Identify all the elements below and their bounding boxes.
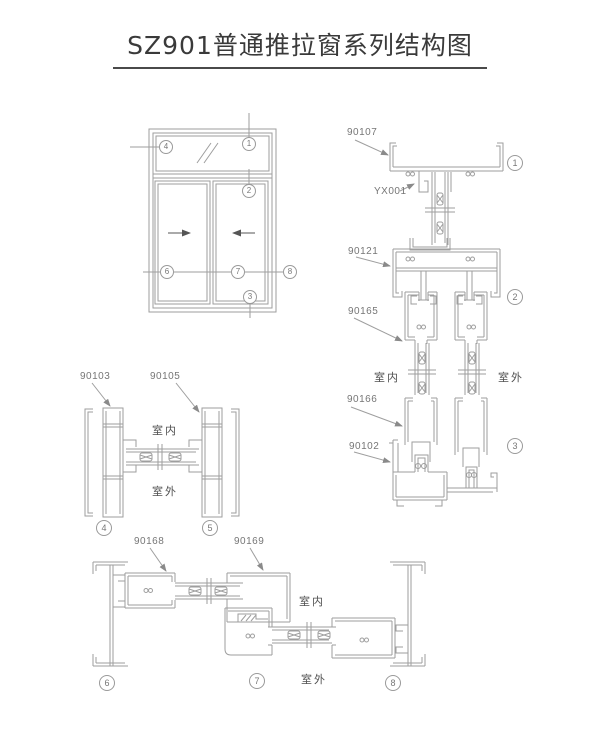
- section-marker-5: 5: [202, 520, 218, 536]
- callout-2-elevation: 2: [242, 184, 256, 198]
- section-marker-2: 2: [507, 289, 523, 305]
- part-label-90107: 90107: [347, 127, 377, 138]
- section-marker-8: 8: [385, 675, 401, 691]
- fixed-glass-unit: [410, 172, 455, 250]
- outdoor-label-jamb-section: 室外: [152, 483, 178, 499]
- glass-unit-left: [175, 578, 243, 604]
- page-title: SZ901普通推拉窗系列结构图: [113, 26, 487, 69]
- right-sash-stile-profile: [332, 618, 395, 658]
- callout-4-elevation: 4: [159, 140, 173, 154]
- part-label-90103: 90103: [80, 371, 110, 382]
- callout-3-elevation: 3: [243, 290, 257, 304]
- outdoor-label-section-v: 室外: [498, 369, 524, 385]
- indoor-label-jamb-section: 室内: [152, 422, 178, 438]
- part-leader-lines: [150, 548, 263, 571]
- part-label-90121: 90121: [348, 246, 378, 257]
- profile-90166-sash-bottoms: [405, 398, 487, 478]
- indoor-label-sash-section: 室内: [299, 593, 325, 609]
- sash-glass-units: [408, 343, 486, 395]
- section-marker-3: 3: [507, 438, 523, 454]
- window-elevation-drawing: [130, 105, 305, 330]
- part-label-90169: 90169: [234, 536, 264, 547]
- callout-1-elevation: 1: [242, 137, 256, 151]
- profile-90168-sash-stile: [125, 573, 175, 608]
- part-label-90166: 90166: [347, 394, 377, 405]
- glass-unit-horizontal: [126, 444, 199, 470]
- section-marker-6: 6: [99, 675, 115, 691]
- profile-90107-top-frame: [390, 143, 503, 176]
- part-label-90165: 90165: [348, 306, 378, 317]
- structure-diagram-page: SZ901普通推拉窗系列结构图: [0, 0, 600, 736]
- glass-hatch-icon: [197, 143, 218, 163]
- left-jamb-profile: [93, 562, 128, 666]
- part-label-yx001: YX001: [374, 186, 407, 197]
- part-label-90168: 90168: [134, 536, 164, 547]
- callout-7-elevation: 7: [231, 265, 245, 279]
- section-marker-4: 4: [96, 520, 112, 536]
- profile-90102-sill-track: [389, 440, 497, 506]
- glass-unit-right: [272, 622, 332, 648]
- callout-6-elevation: 6: [160, 265, 174, 279]
- profile-90105-jamb: [189, 408, 239, 517]
- part-label-90105: 90105: [150, 371, 180, 382]
- sliding-sashes: [155, 181, 268, 304]
- callout-8-elevation: 8: [283, 265, 297, 279]
- section-marker-1: 1: [507, 155, 523, 171]
- sash-section-drawing: [88, 545, 433, 680]
- part-label-90102: 90102: [349, 441, 379, 452]
- outdoor-label-sash-section: 室外: [301, 671, 327, 687]
- jamb-section-drawing: [75, 378, 245, 523]
- section-marker-7: 7: [249, 673, 265, 689]
- indoor-label-section-v: 室内: [374, 369, 400, 385]
